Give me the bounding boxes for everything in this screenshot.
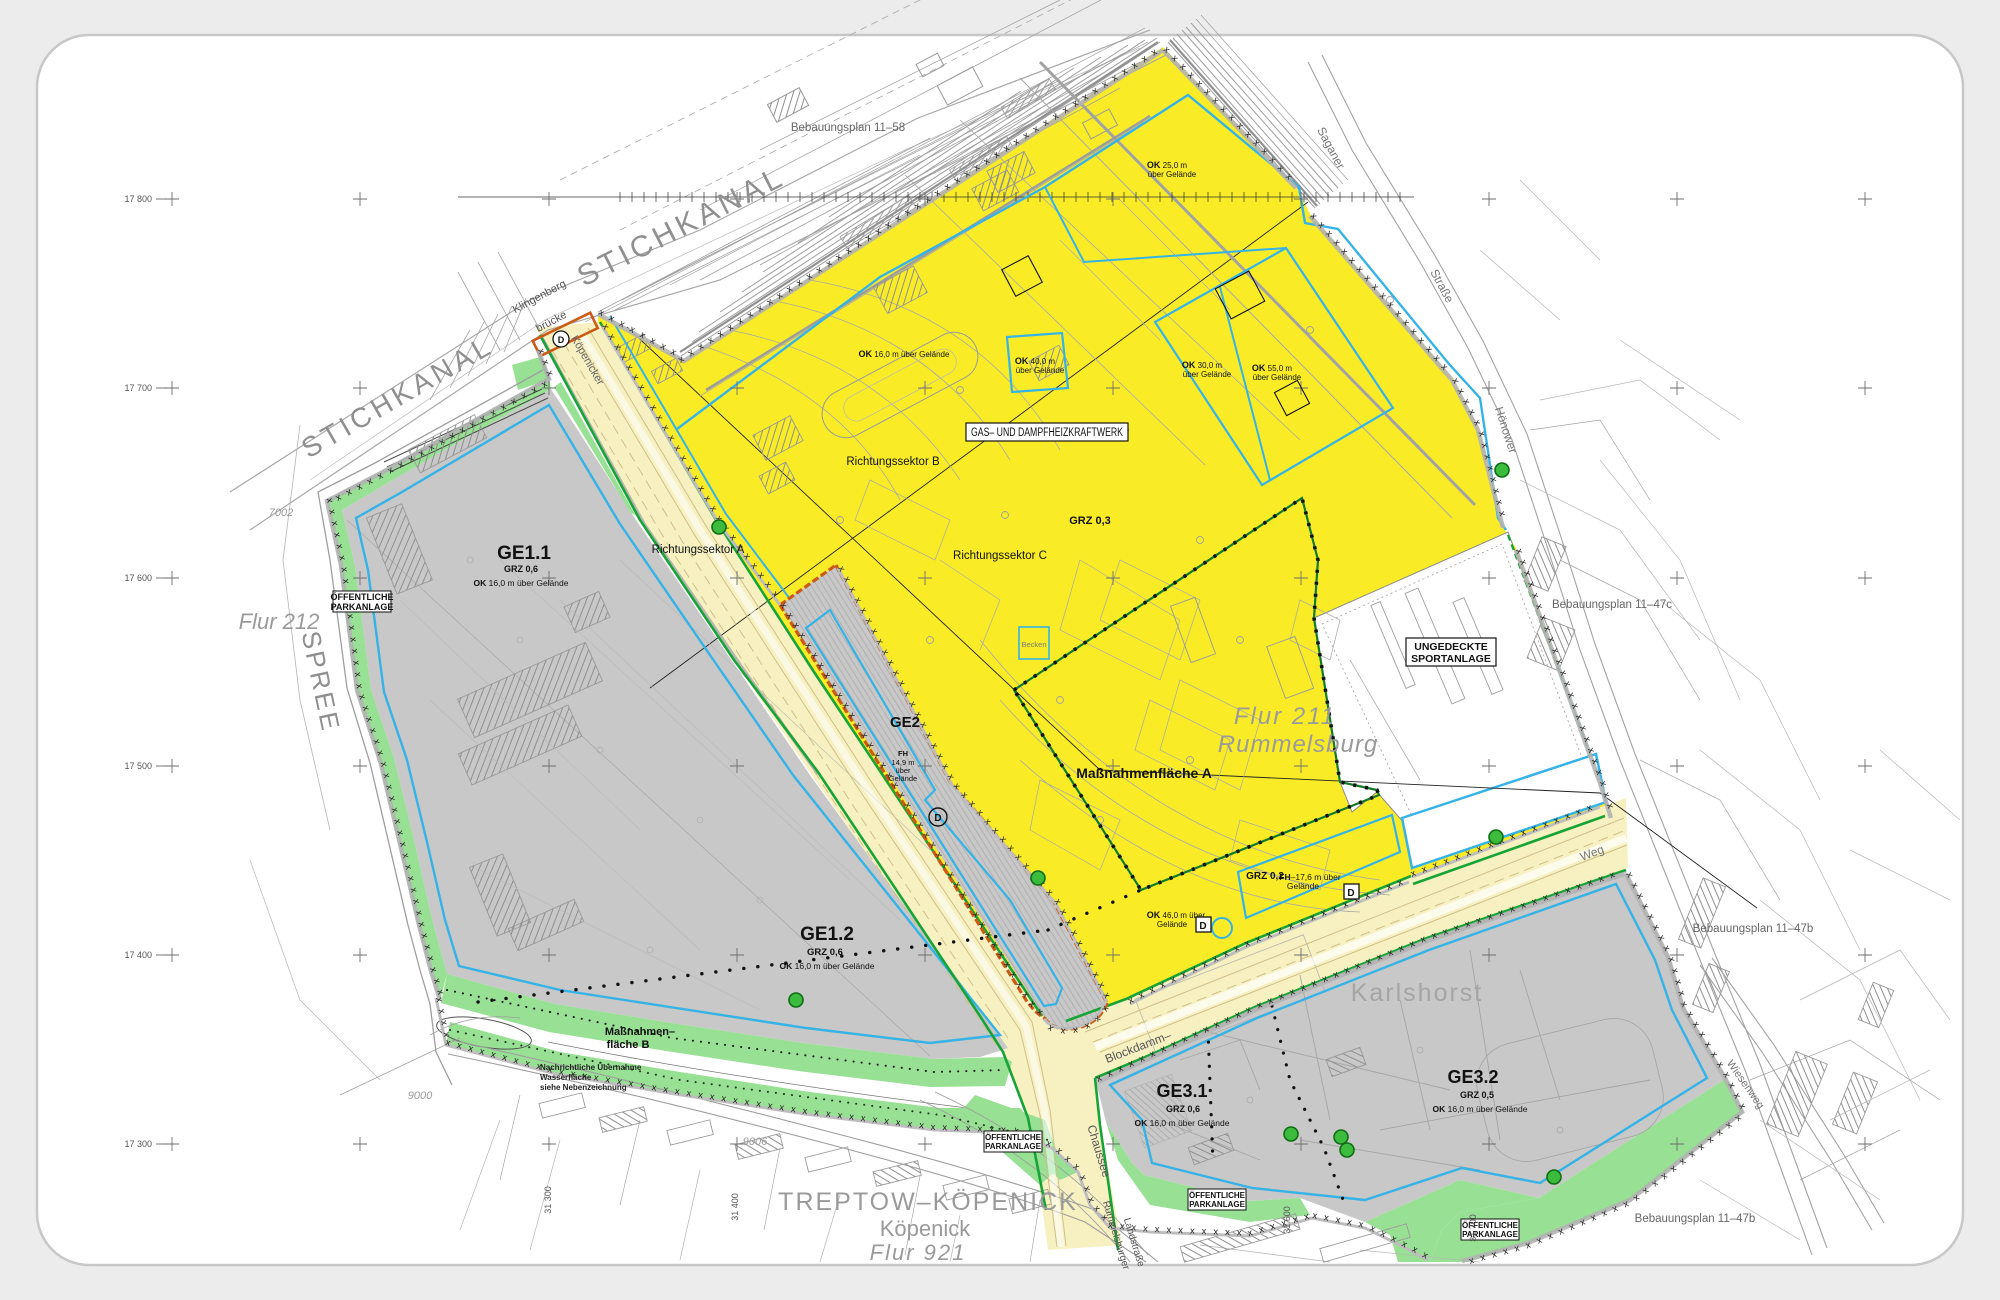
svg-text:17 800: 17 800 (124, 194, 152, 204)
svg-text:OK 16,0 m über Gelände: OK 16,0 m über Gelände (859, 349, 950, 359)
svg-text:7002: 7002 (269, 507, 293, 519)
svg-text:17 600: 17 600 (124, 573, 152, 583)
svg-text:9000: 9000 (408, 1090, 433, 1102)
svg-text:Gelände: Gelände (1157, 920, 1188, 929)
svg-text:OK 16,0 m über Gelände: OK 16,0 m über Gelände (1433, 1104, 1528, 1114)
svg-text:31 300: 31 300 (543, 1186, 553, 1214)
svg-text:ÖFFENTLICHE: ÖFFENTLICHE (331, 592, 394, 602)
svg-text:GE1.1: GE1.1 (497, 543, 551, 564)
svg-text:PARKANLAGE: PARKANLAGE (331, 602, 394, 612)
svg-text:OK 16,0 m über Gelände: OK 16,0 m über Gelände (1135, 1118, 1230, 1128)
svg-text:GRZ 0,3: GRZ 0,3 (1069, 515, 1111, 527)
svg-text:Flur 211: Flur 211 (1234, 703, 1336, 730)
svg-text:ÖFFENTLICHE: ÖFFENTLICHE (985, 1133, 1042, 1142)
svg-text:Gelände: Gelände (1287, 881, 1319, 891)
svg-text:Köpenick: Köpenick (880, 1216, 972, 1241)
svg-text:über Gelände: über Gelände (1148, 170, 1197, 179)
svg-text:UNGEDECKTE: UNGEDECKTE (1414, 641, 1488, 653)
svg-text:Richtungssektor A: Richtungssektor A (652, 544, 745, 556)
svg-text:fläche B: fläche B (607, 1039, 650, 1051)
svg-text:FH: FH (898, 749, 908, 758)
svg-text:Wasserfläche: Wasserfläche (540, 1073, 592, 1082)
svg-text:Becken: Becken (1021, 640, 1046, 649)
svg-text:31 700: 31 700 (1468, 1214, 1478, 1242)
svg-text:Bebauungsplan 11–58: Bebauungsplan 11–58 (791, 122, 905, 134)
svg-text:über Gelände: über Gelände (1253, 373, 1302, 382)
svg-text:Nachrichtliche Übernahme: Nachrichtliche Übernahme (540, 1063, 642, 1072)
svg-text:Karlshorst: Karlshorst (1351, 979, 1484, 1007)
svg-text:OK 16,0 m über Gelände: OK 16,0 m über Gelände (474, 578, 569, 588)
svg-text:D: D (1199, 921, 1206, 932)
svg-text:Flur 212: Flur 212 (239, 609, 320, 634)
svg-text:31 600: 31 600 (1282, 1206, 1292, 1234)
svg-text:GE2: GE2 (890, 714, 920, 731)
svg-text:Bebauungsplan 11–47c: Bebauungsplan 11–47c (1552, 599, 1672, 611)
svg-text:Bebauungsplan 11–47b: Bebauungsplan 11–47b (1635, 1213, 1756, 1225)
svg-text:D: D (934, 813, 941, 824)
svg-text:GAS– UND DAMPFHEIZKRAFTWERK: GAS– UND DAMPFHEIZKRAFTWERK (971, 427, 1123, 439)
svg-text:Flur 921: Flur 921 (870, 1240, 967, 1265)
svg-text:PARKANLAGE: PARKANLAGE (985, 1142, 1042, 1151)
svg-text:über Gelände: über Gelände (1016, 366, 1065, 375)
svg-text:SPORTANLAGE: SPORTANLAGE (1411, 653, 1491, 665)
svg-text:GE3.1: GE3.1 (1156, 1081, 1207, 1101)
svg-text:Gelände: Gelände (889, 774, 917, 783)
svg-text:Bebauungsplan 11–47b: Bebauungsplan 11–47b (1693, 923, 1814, 935)
svg-text:9006: 9006 (743, 1136, 768, 1148)
svg-text:OK 30,0 m: OK 30,0 m (1182, 360, 1223, 370)
svg-text:D: D (558, 335, 565, 345)
svg-text:17 300: 17 300 (124, 1139, 152, 1149)
svg-text:17 400: 17 400 (124, 950, 152, 960)
svg-text:über Gelände: über Gelände (1183, 370, 1232, 379)
svg-text:siehe Nebenzeichnung: siehe Nebenzeichnung (540, 1083, 627, 1092)
svg-text:OK 55,0 m: OK 55,0 m (1252, 363, 1293, 373)
svg-text:PARKANLAGE: PARKANLAGE (1189, 1200, 1246, 1209)
svg-text:GRZ 0,6: GRZ 0,6 (1166, 1104, 1200, 1114)
svg-text:GRZ 0,5: GRZ 0,5 (1460, 1090, 1494, 1100)
svg-text:Maßnahmen–: Maßnahmen– (605, 1026, 675, 1038)
svg-text:ÖFFENTLICHE: ÖFFENTLICHE (1189, 1191, 1246, 1200)
svg-text:Richtungssektor B: Richtungssektor B (846, 456, 940, 468)
svg-text:GRZ 0,6: GRZ 0,6 (504, 564, 538, 574)
svg-text:OK 25,0 m: OK 25,0 m (1147, 160, 1188, 170)
svg-text:OK 16,0 m über Gelände: OK 16,0 m über Gelände (780, 961, 875, 971)
svg-text:31 400: 31 400 (730, 1193, 740, 1221)
svg-text:17 500: 17 500 (124, 761, 152, 771)
svg-text:GE1.2: GE1.2 (800, 924, 854, 945)
svg-text:GE3.2: GE3.2 (1447, 1067, 1498, 1087)
svg-text:GRZ 0,6: GRZ 0,6 (807, 947, 843, 958)
svg-text:D: D (1347, 888, 1354, 899)
svg-text:Richtungssektor C: Richtungssektor C (953, 550, 1047, 562)
svg-text:OK 40,0 m: OK 40,0 m (1015, 356, 1056, 366)
svg-text:17 700: 17 700 (124, 383, 152, 393)
svg-text:Rummelsburg: Rummelsburg (1218, 731, 1378, 758)
svg-text:TREPTOW–KÖPENICK: TREPTOW–KÖPENICK (778, 1188, 1078, 1216)
svg-text:Maßnahmenfläche A: Maßnahmenfläche A (1076, 765, 1212, 781)
